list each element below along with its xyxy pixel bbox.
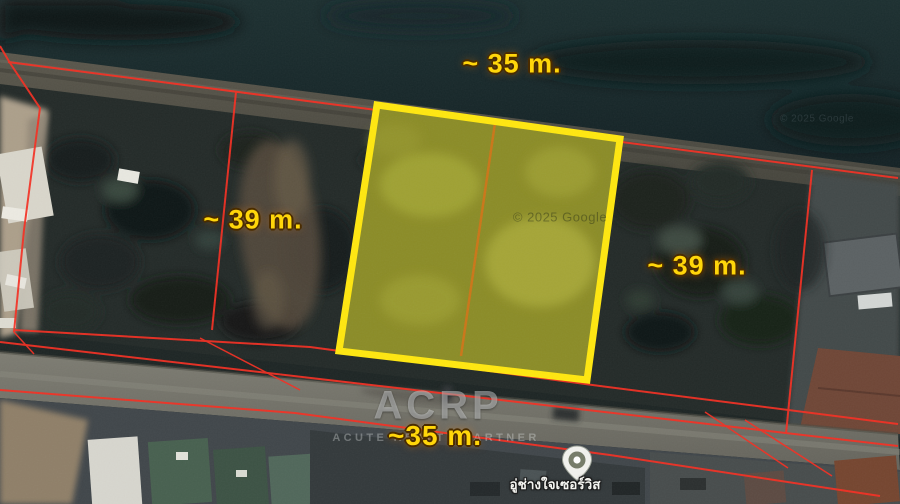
photo-grain-overlay bbox=[0, 0, 900, 504]
aerial-listing-image: ~ 35 m. ~ 39 m. ~ 39 m. © 2025 Google © … bbox=[0, 0, 900, 504]
satellite-map-canvas bbox=[0, 0, 900, 504]
